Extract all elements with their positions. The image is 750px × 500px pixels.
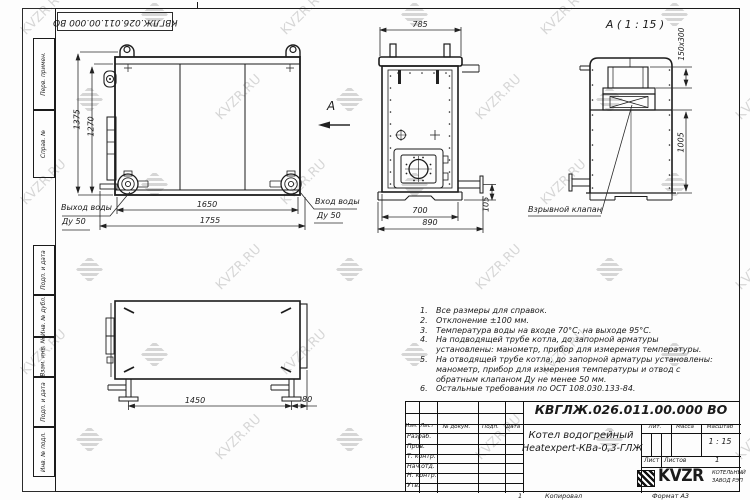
stamp-label: Подп. и дата <box>41 250 47 290</box>
water-outlet-dn: Ду 50 <box>62 218 86 227</box>
detail-view-drawing <box>520 30 720 228</box>
stamp-label: Подп. и дата <box>41 382 47 422</box>
plan-dim-1450: 1450 <box>172 397 218 406</box>
side-dim-785: 785 <box>398 21 442 30</box>
stamp-label: Инв. № подл. <box>41 432 47 472</box>
note-item: 4.На подводящей трубе котла, до запорной… <box>420 335 716 355</box>
stamp-label: Перв. примен. <box>41 52 47 96</box>
note-item: 5.На отводящей трубе котла, до запорной … <box>420 355 716 384</box>
stamp-label: Инв. № дубл. <box>41 296 47 336</box>
front-dim-1650: 1650 <box>185 201 229 210</box>
side-dim-890: 890 <box>408 219 452 228</box>
drawing-sheet: KVZR.RUKVZR.RUKVZR.RUKVZR.RUKVZR.RUKVZR.… <box>0 0 750 500</box>
side-dim-700: 700 <box>398 207 442 216</box>
note-item: 3.Температура воды на входе 70°С, на вых… <box>420 326 716 336</box>
water-outlet-label: Выход воды <box>61 204 112 213</box>
stamp-label: Справ. № <box>41 130 47 158</box>
front-dim-1755: 1755 <box>188 217 232 226</box>
detail-view-title: А ( 1 : 15 ) <box>595 19 675 31</box>
stamp-vzam-inv: Взам. инв. № <box>33 337 55 377</box>
stamp-sprav-no: Справ. № <box>33 110 55 178</box>
fold-mark <box>197 2 198 8</box>
view-direction-arrow <box>318 122 330 129</box>
stamp-inv-dubl: Инв. № дубл. <box>33 295 55 337</box>
technical-notes: 1.Все размеры для справок. 2.Отклонение … <box>420 306 716 394</box>
side-dim-105: 105 <box>483 187 492 221</box>
note-item: 2.Отклонение ±100 мм. <box>420 316 716 326</box>
plan-dim-80: 80 <box>302 396 312 405</box>
explosion-valve-callout: Взрывной клапан <box>528 206 602 215</box>
front-dim-1375: 1375 <box>74 97 83 141</box>
copy-number: 1 <box>518 493 522 500</box>
stamp-inv-podl: Инв. № подл. <box>33 427 55 477</box>
format-label: Формат А3 <box>652 493 689 500</box>
title-block <box>405 401 740 492</box>
doc-number-top-box: КВГЛЖ.026.011.00.000 ВО <box>57 12 173 31</box>
view-letter-a: А <box>327 100 335 113</box>
doc-number-top: КВГЛЖ.026.011.00.000 ВО <box>53 17 178 27</box>
stamp-podp-data-1: Подп. и дата <box>33 245 55 295</box>
water-inlet-label: Вход воды <box>315 198 360 207</box>
detail-dim-1005: 1005 <box>678 122 687 162</box>
stamp-podp-data-2: Подп. и дата <box>33 377 55 427</box>
stamp-perv-primen: Перв. примен. <box>33 38 55 110</box>
front-dim-1270: 1270 <box>88 104 97 148</box>
detail-dim-150x300: 150x300 <box>678 22 686 66</box>
note-item: 1.Все размеры для справок. <box>420 306 716 316</box>
water-inlet-dn: Ду 50 <box>317 212 341 221</box>
stamp-label: Взам. инв. № <box>41 337 47 376</box>
plan-view-drawing <box>95 292 335 412</box>
copied-label: Копировал <box>545 493 582 500</box>
note-item: 6.Остальные требования по ОСТ 108.030.13… <box>420 384 716 394</box>
